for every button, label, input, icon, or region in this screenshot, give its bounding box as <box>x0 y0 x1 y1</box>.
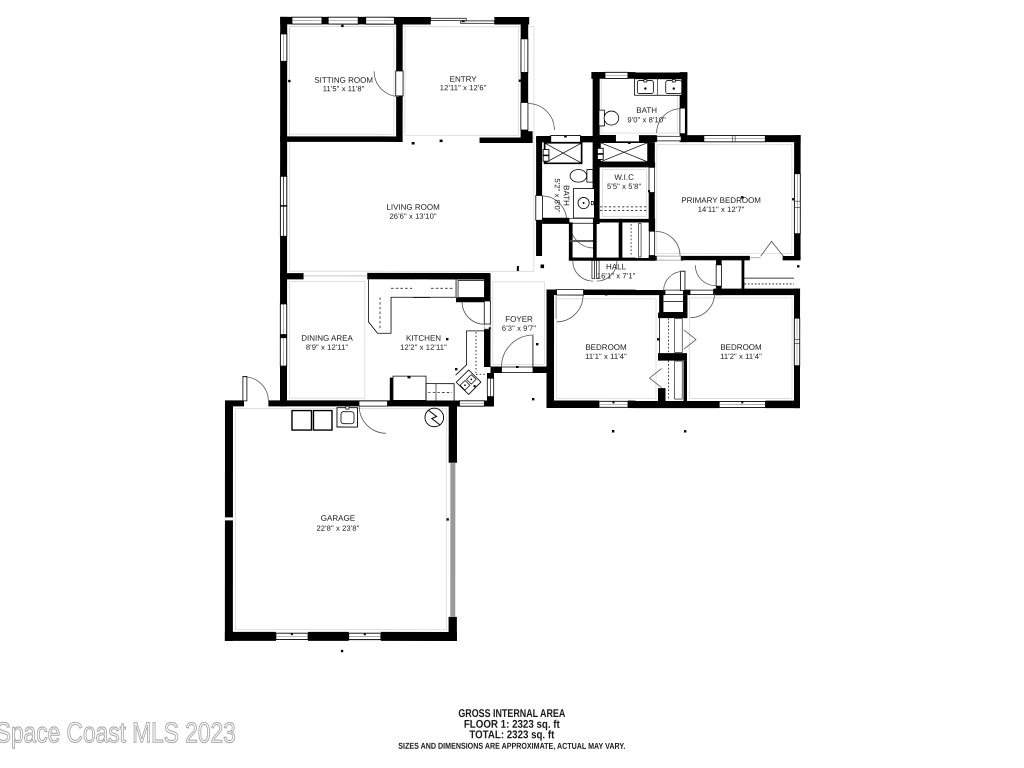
svg-text:BATH: BATH <box>636 106 657 115</box>
svg-text:GARAGE: GARAGE <box>321 514 355 523</box>
svg-text:5'2" x 8'0": 5'2" x 8'0" <box>553 178 562 213</box>
svg-text:TOTAL: 2323 sq. ft: TOTAL: 2323 sq. ft <box>469 729 554 741</box>
svg-text:12'2" x 12'11": 12'2" x 12'11" <box>400 343 447 352</box>
svg-text:9'0" x 8'10": 9'0" x 8'10" <box>627 115 666 124</box>
svg-text:BEDROOM: BEDROOM <box>720 343 762 352</box>
svg-text:6'3" x 9'7": 6'3" x 9'7" <box>502 324 537 333</box>
svg-text:DINING AREA: DINING AREA <box>301 334 353 343</box>
svg-text:11'5" x 11'8": 11'5" x 11'8" <box>323 84 365 93</box>
svg-text:16'1" x 7'1": 16'1" x 7'1" <box>597 271 636 280</box>
svg-text:12'11" x 12'6": 12'11" x 12'6" <box>440 83 487 92</box>
svg-text:14'11" x 12'7": 14'11" x 12'7" <box>698 205 745 214</box>
svg-text:FOYER: FOYER <box>505 315 533 324</box>
svg-text:PRIMARY BEDROOM: PRIMARY BEDROOM <box>681 196 761 205</box>
svg-text:KITCHEN: KITCHEN <box>406 334 441 343</box>
svg-text:BATH: BATH <box>562 185 571 206</box>
svg-text:22'8" x 23'8": 22'8" x 23'8" <box>316 524 359 533</box>
svg-text:26'6" x 13'10": 26'6" x 13'10" <box>389 212 436 221</box>
svg-text:Space Coast MLS 2023: Space Coast MLS 2023 <box>0 717 236 749</box>
svg-text:5'5" x 5'8": 5'5" x 5'8" <box>607 182 642 191</box>
svg-text:SIZES AND DIMENSIONS ARE APPRO: SIZES AND DIMENSIONS ARE APPROXIMATE, AC… <box>398 741 625 751</box>
svg-text:BEDROOM: BEDROOM <box>585 343 627 352</box>
svg-text:LIVING ROOM: LIVING ROOM <box>386 203 440 212</box>
svg-text:11'2" x 11'4": 11'2" x 11'4" <box>720 352 762 361</box>
svg-text:8'9" x 12'11": 8'9" x 12'11" <box>306 343 349 352</box>
svg-text:11'1" x 11'4": 11'1" x 11'4" <box>585 352 627 361</box>
svg-text:HALL: HALL <box>606 262 627 271</box>
svg-text:W.I.C: W.I.C <box>614 173 634 182</box>
